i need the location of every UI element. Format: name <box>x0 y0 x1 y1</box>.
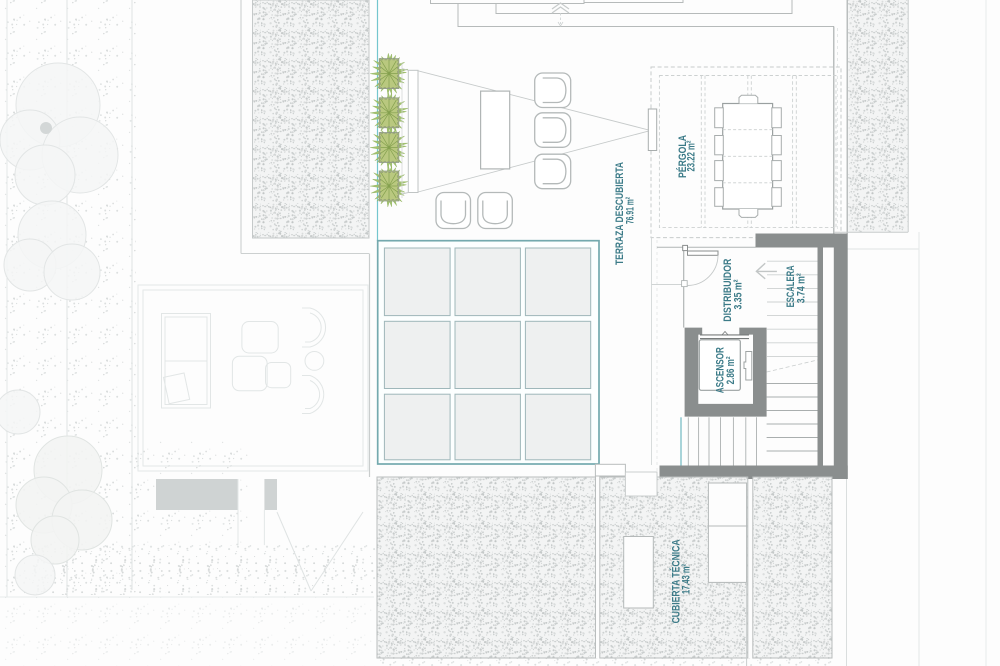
svg-text:3.74 m²: 3.74 m² <box>796 273 808 303</box>
svg-text:17.43 m²: 17.43 m² <box>680 564 692 594</box>
svg-text:2.86 m²: 2.86 m² <box>725 356 737 384</box>
svg-text:23.22 m²: 23.22 m² <box>686 140 698 171</box>
svg-text:76.91 m²: 76.91 m² <box>624 197 636 224</box>
svg-text:3.35 m²: 3.35 m² <box>733 279 745 309</box>
